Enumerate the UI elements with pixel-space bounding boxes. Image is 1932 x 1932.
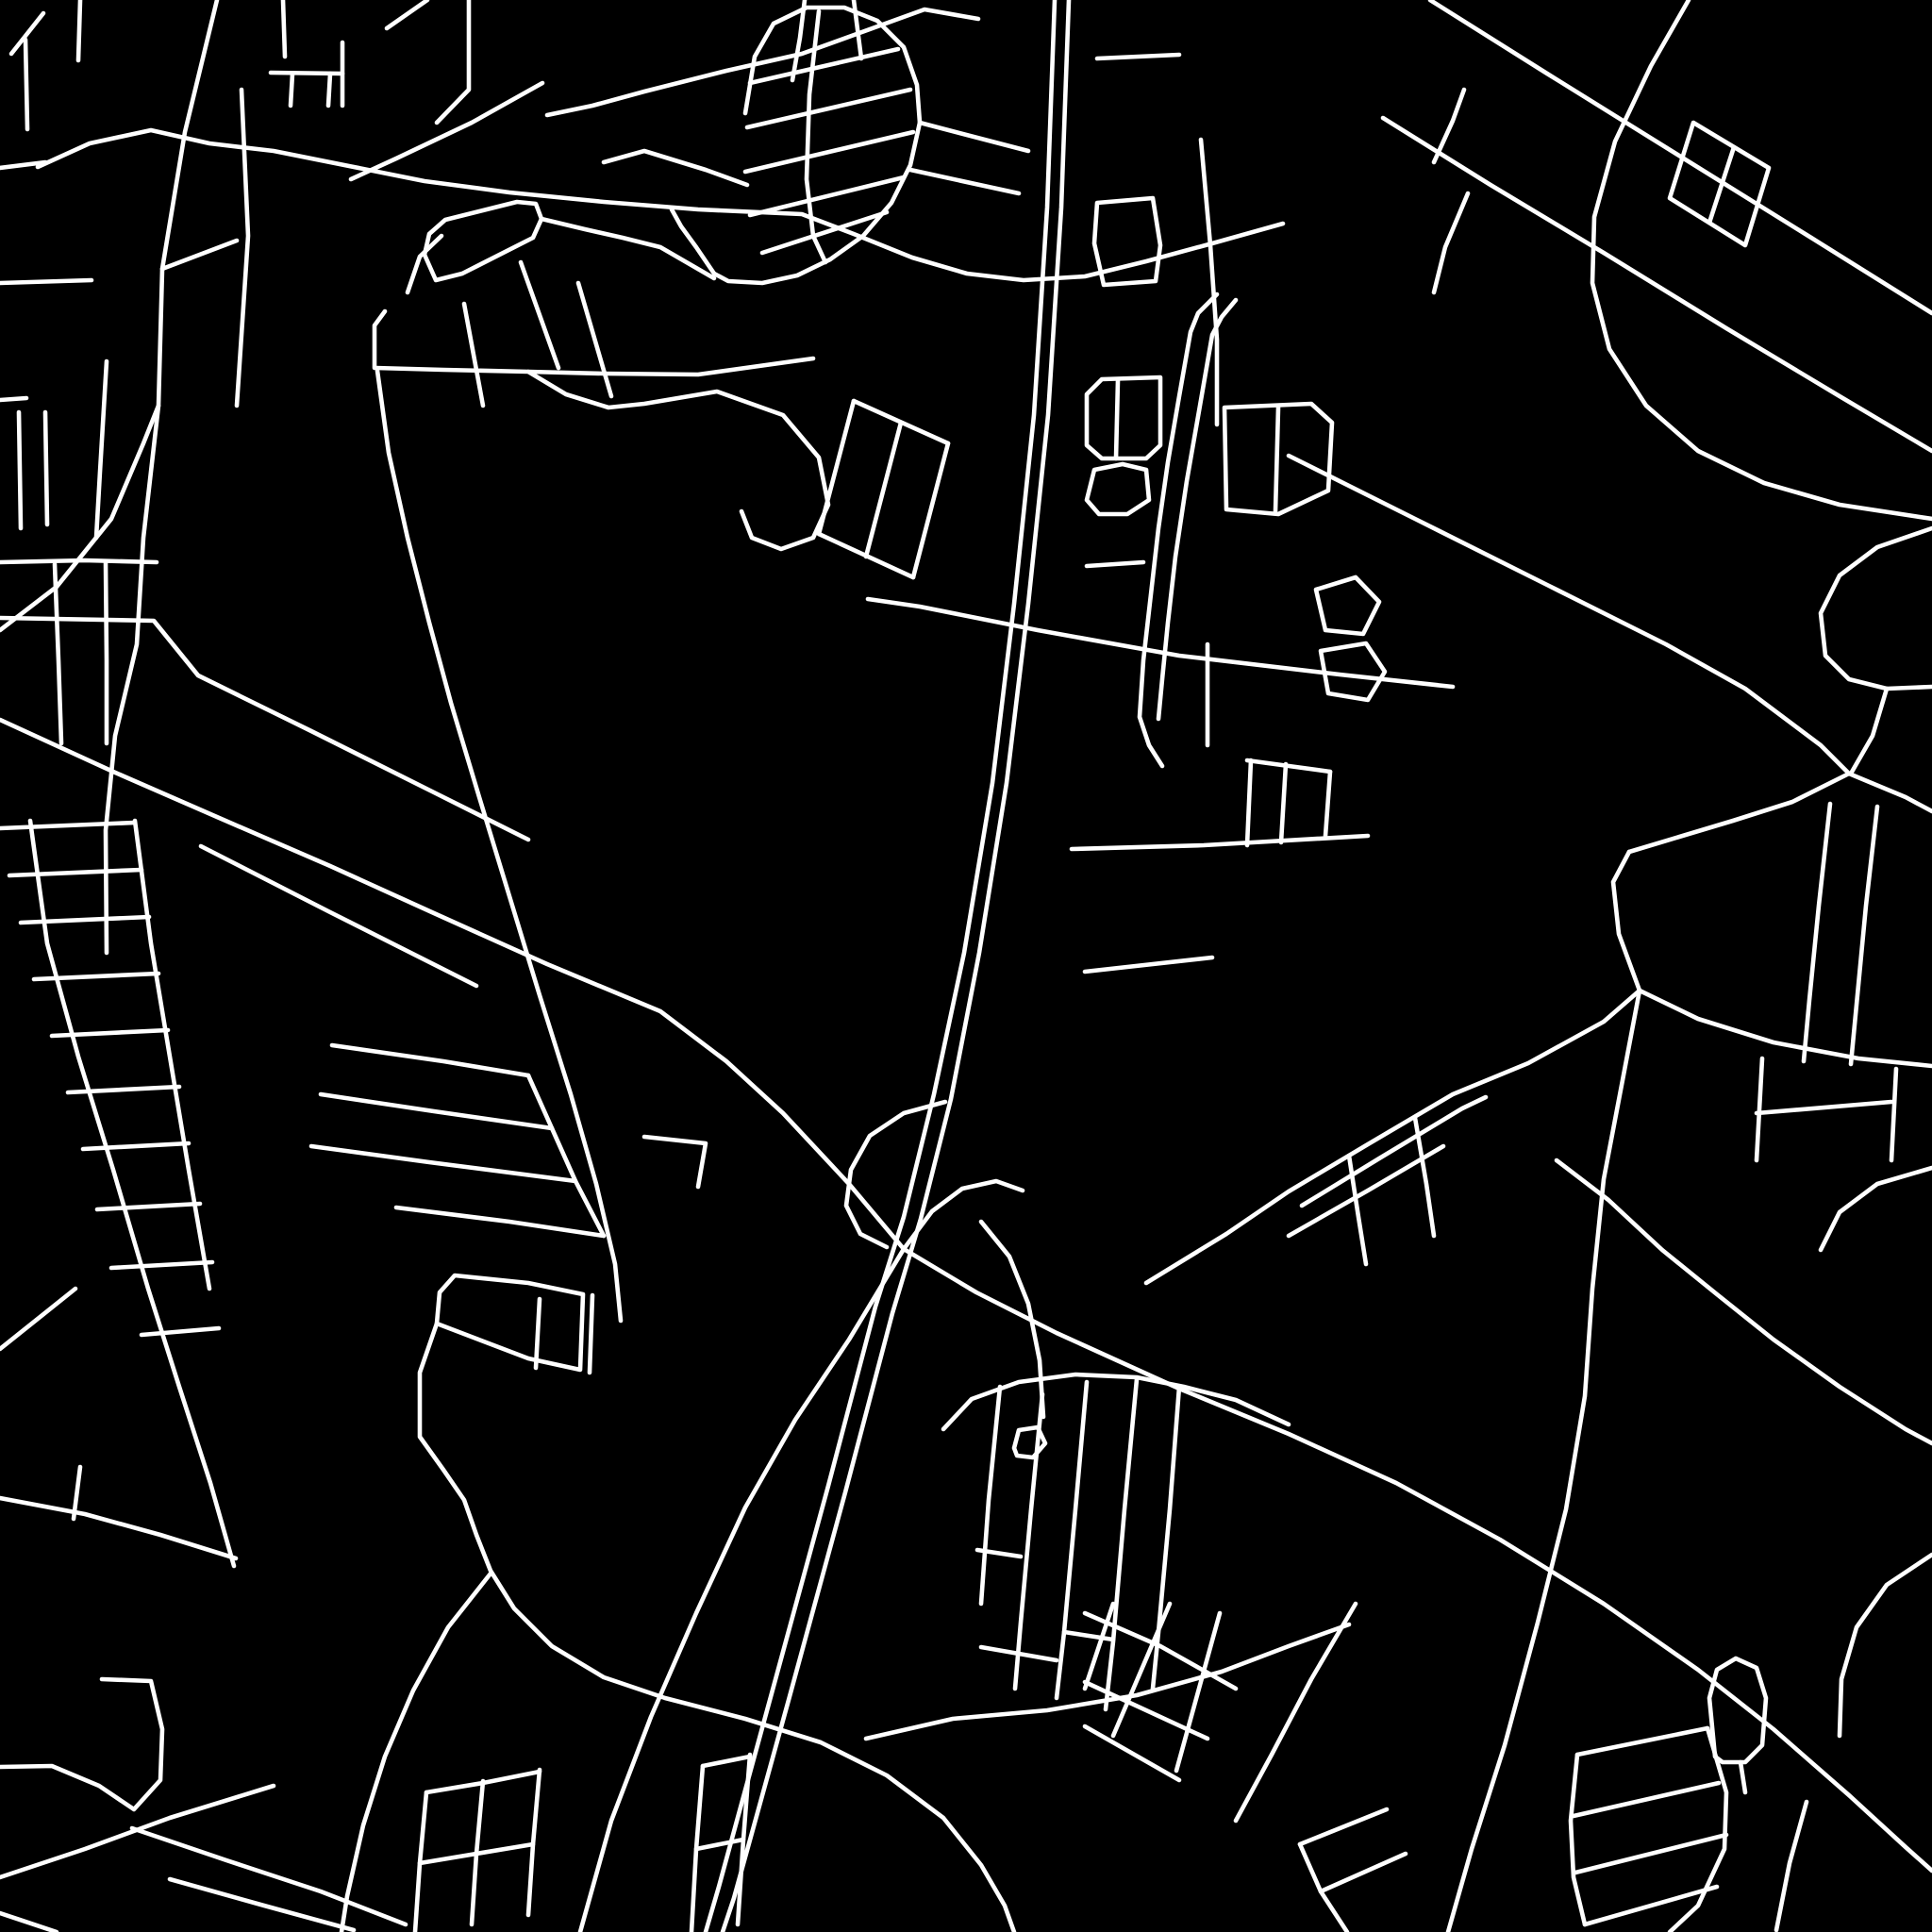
road-boulevard-b — [1146, 991, 1640, 1283]
road-balloon-rung-1 — [750, 49, 898, 83]
road-balloon-rung-3 — [745, 132, 913, 172]
road-right-vert-belowroad-b — [1891, 1069, 1896, 1160]
road-pentagon-bottom-road — [1640, 991, 1932, 1066]
road-top-diag-stub — [387, 0, 427, 28]
road-blob-below-flag — [1087, 464, 1149, 514]
road-balloon-east-tooth-b — [910, 170, 1019, 193]
road-mini-grid5-b — [866, 423, 901, 557]
road-nw-boundary-curve — [351, 83, 542, 179]
road-comb-tooth-1 — [1247, 760, 1251, 845]
road-ladder-rung-4 — [34, 974, 158, 979]
road-mini-grid5-top — [854, 401, 948, 443]
road-left-vert-stub-b — [45, 412, 47, 525]
road-boulevard-b-twin — [1302, 1097, 1486, 1206]
road-hook-j — [528, 372, 828, 549]
road-street-s3 — [578, 283, 611, 396]
road-grid9-perp-3 — [1176, 1613, 1220, 1771]
road-grid8-v2 — [1015, 1394, 1042, 1689]
road-grid8-v3 — [1057, 1382, 1087, 1698]
road-comb-horiz-1 — [1072, 836, 1368, 849]
road-fan-tooth-3 — [1575, 1835, 1726, 1873]
road-stadium-e-outline — [1709, 1658, 1766, 1762]
road-ladder-rung-1 — [0, 823, 135, 828]
road-se-curve-road — [1557, 1160, 1932, 1443]
road-ladder-rung-8 — [97, 1204, 200, 1209]
road-balloon-east-tooth-a — [920, 123, 1028, 151]
road-street-s2 — [521, 262, 558, 368]
road-mini-pentagon — [1014, 1427, 1045, 1457]
road-fan-left — [1571, 1755, 1585, 1924]
road-below-b-parallel — [1289, 1146, 1443, 1236]
road-court-block-e-inner — [1275, 408, 1278, 511]
road-flag-inner — [1116, 380, 1118, 458]
road-junction-south-branch — [580, 1249, 904, 1932]
road-valley-road — [420, 1324, 1014, 1932]
map-canvas[interactable] — [0, 0, 1932, 1932]
road-sw-parallel-b — [132, 1828, 406, 1924]
map-viewport — [0, 0, 1932, 1932]
road-short-horiz-596 — [1087, 562, 1143, 566]
road-lone-diag — [1236, 1604, 1356, 1821]
road-sw-corner-stub — [0, 1913, 57, 1932]
road-parallel-stub-nw — [237, 90, 248, 406]
road-l-piece — [644, 1137, 706, 1187]
road-comb-tooth-3 — [1325, 772, 1330, 836]
road-second-vert-left — [96, 361, 107, 538]
road-ladder-rung-3 — [21, 917, 149, 923]
road-pent-vert-b — [1851, 807, 1877, 1064]
road-ne-diag-a — [547, 9, 978, 115]
road-comb-top — [1247, 760, 1330, 772]
road-pentagon-left — [1613, 852, 1640, 991]
road-nbhd-crosser — [528, 1075, 604, 1236]
road-hwy-west-grid-r2 — [703, 1757, 750, 1766]
road-blob-a — [1316, 577, 1379, 634]
road-ladder-right-rail — [135, 821, 209, 1289]
road-y-fork — [1434, 90, 1464, 162]
road-seam-line-b — [604, 151, 747, 185]
road-pencil-spur — [408, 236, 441, 292]
road-stadium-w-inner — [536, 1299, 540, 1368]
road-ladder-left-rail — [30, 821, 234, 1566]
road-diag-spur-bottom — [1776, 1802, 1807, 1930]
road-stadium-w-right-vert — [590, 1295, 592, 1373]
road-ladder-rung-7 — [83, 1143, 189, 1149]
road-corner-diag-sw — [0, 1289, 75, 1349]
road-br-corner-curve — [1821, 1168, 1932, 1250]
road-vert-from-horiz-b — [106, 562, 107, 743]
road-small-fan-tooth-1 — [1300, 1809, 1387, 1844]
road-sw-road-a — [0, 1498, 236, 1558]
road-nw-rung-a — [0, 280, 92, 283]
road-top-stub-vert-a — [283, 0, 285, 57]
road-street-s1 — [464, 304, 483, 406]
road-top-vert-bend — [437, 0, 469, 123]
road-hook-y393 — [375, 311, 385, 368]
road-diag-d2 — [1383, 118, 1932, 451]
road-cross-stub-x — [854, 0, 861, 58]
road-mini-grid5-c — [913, 443, 948, 577]
road-valley-branch-sw — [341, 1574, 491, 1932]
road-stub-top-a — [78, 0, 80, 60]
road-stub-left-b — [0, 398, 26, 400]
road-pent-vert-a — [1804, 804, 1830, 1061]
road-nbhd-rung-4 — [396, 1207, 604, 1236]
road-right-edge-curve-s — [1840, 1555, 1932, 1736]
road-curve-cr — [1592, 0, 1932, 519]
road-balloon-rung-2 — [747, 90, 910, 127]
road-nbhd-rung-2 — [321, 1094, 552, 1128]
road-pencil-to-balloon — [541, 219, 714, 278]
road-nw-connector — [162, 241, 237, 269]
road-stadium-e-connector — [1740, 1762, 1745, 1792]
road-ladder-rung-10 — [142, 1328, 219, 1335]
road-small-fan-tooth-2 — [1321, 1854, 1406, 1891]
road-d2-spur-down — [1434, 193, 1468, 292]
road-d3-branch-right — [1849, 774, 1932, 811]
road-street-1030 — [1085, 958, 1212, 972]
road-ladder-rung-9 — [111, 1262, 212, 1268]
road-right-vert-belowroad-a — [1757, 1058, 1762, 1160]
road-vert-from-horiz-a — [55, 564, 61, 743]
road-corner-vert-stub — [25, 40, 27, 129]
road-mini-grid5-bottom — [819, 534, 913, 577]
road-nbhd-rung-3 — [311, 1146, 575, 1181]
road-c-curve-connector — [1851, 689, 1887, 774]
road-balloon-rung-4 — [750, 177, 904, 215]
road-left-vert-stub-a — [19, 412, 21, 528]
road-right-edge-c-curve — [1821, 528, 1932, 689]
road-below-b-tooth-b — [1415, 1118, 1434, 1236]
road-grid8-v4 — [1106, 1379, 1137, 1709]
road-comb-tooth-2 — [1281, 764, 1286, 842]
road-curve-c1 — [0, 406, 158, 630]
road-ladder-rung-6 — [68, 1087, 179, 1092]
road-l-road-central — [377, 371, 621, 1321]
road-road-y393 — [375, 358, 813, 375]
road-diag-upper-west — [0, 618, 528, 840]
road-f-vert-b — [328, 74, 330, 106]
road-sw-parallel-a — [170, 1879, 354, 1930]
road-hwy-west-grid-r1 — [696, 1840, 743, 1849]
road-grid8-v5 — [1153, 1387, 1179, 1689]
road-hwy-left — [706, 0, 1055, 1932]
road-long-vert-v2 — [1448, 991, 1640, 1932]
road-grid8-r3 — [1064, 1632, 1113, 1640]
road-grid9-par-3 — [1085, 1726, 1179, 1780]
road-horiz-ne-stub — [1097, 55, 1179, 58]
road-f-vert-a — [291, 74, 292, 106]
road-flag-block — [1087, 377, 1160, 458]
road-d2-block — [1670, 123, 1769, 245]
road-mini-grid5-a — [819, 401, 854, 534]
road-stadium-w-outline — [437, 1275, 583, 1370]
road-sw-hook — [0, 1679, 162, 1809]
road-fan-tooth-1 — [1577, 1728, 1707, 1755]
road-grid8-v1 — [981, 1387, 1000, 1604]
road-ladder-rung-2 — [9, 870, 142, 875]
road-fan-tooth-2 — [1574, 1783, 1719, 1816]
road-nbhd-rung-1 — [332, 1045, 528, 1075]
road-right-rung — [1757, 1102, 1891, 1113]
road-fan-arc — [1670, 1728, 1726, 1932]
